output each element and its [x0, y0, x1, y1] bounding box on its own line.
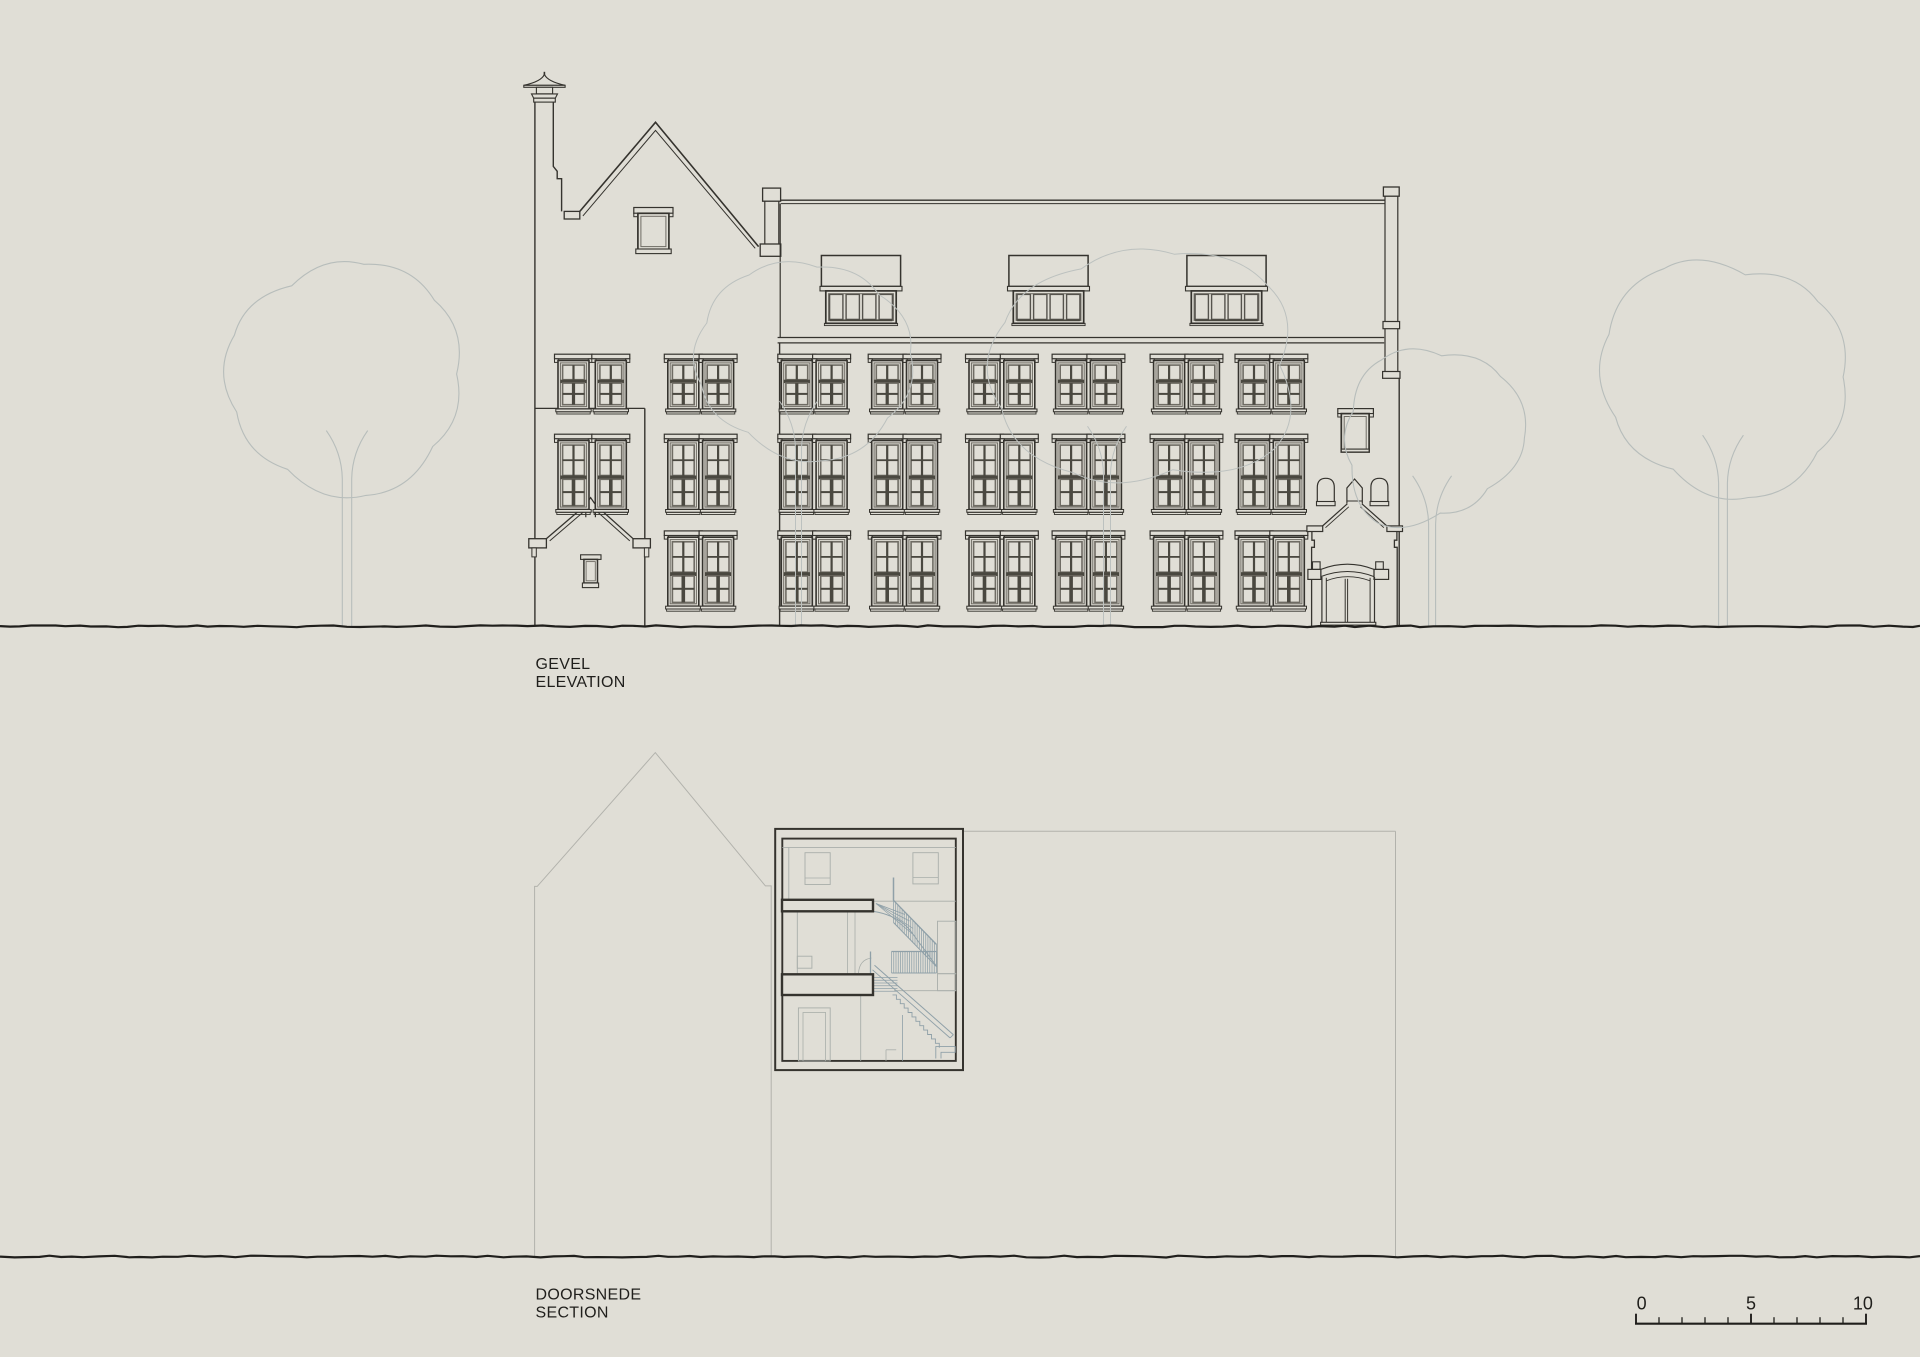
svg-text:0: 0	[1637, 1294, 1647, 1314]
svg-text:10: 10	[1853, 1294, 1873, 1314]
svg-text:GEVEL: GEVEL	[536, 656, 591, 673]
svg-text:ELEVATION: ELEVATION	[536, 674, 626, 691]
svg-text:DOORSNEDE: DOORSNEDE	[536, 1286, 642, 1303]
svg-text:SECTION: SECTION	[536, 1304, 609, 1321]
svg-text:5: 5	[1746, 1294, 1756, 1314]
